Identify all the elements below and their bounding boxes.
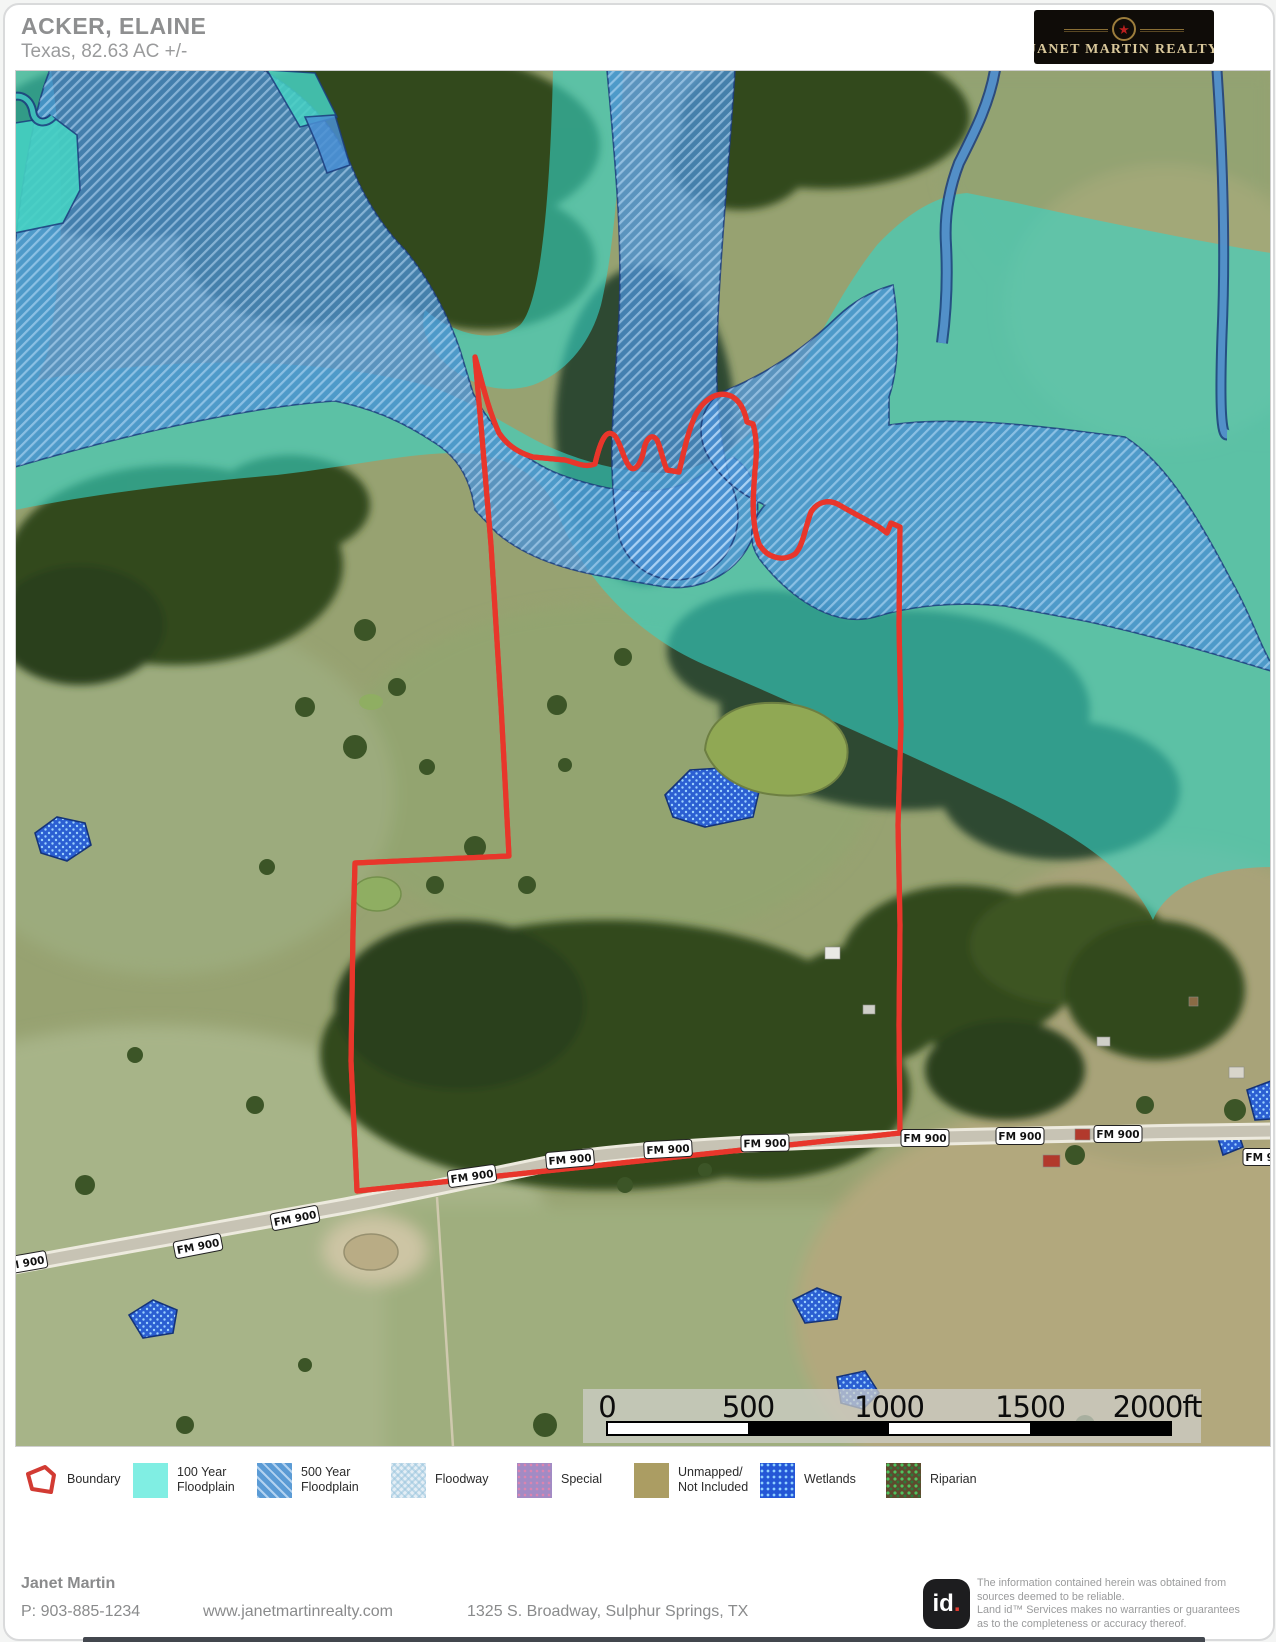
page-subtitle: Texas, 82.63 AC +/-	[21, 41, 187, 63]
agent-address: 1325 S. Broadway, Sulphur Springs, TX	[467, 1603, 748, 1621]
boundary-icon	[23, 1463, 58, 1498]
scale-tick: 1500	[995, 1390, 1065, 1424]
page: ACKER, ELAINE Texas, 82.63 AC +/- ★ JANE…	[0, 0, 1276, 1642]
agent-name: Janet Martin	[21, 1575, 115, 1593]
legend-label: Riparian	[930, 1472, 977, 1486]
legend-label: Unmapped/	[678, 1465, 743, 1479]
legend-label: Boundary	[67, 1472, 121, 1486]
scale-bar: 0 500 1000 1500 2000ft	[583, 1389, 1202, 1443]
floodplain-100yr-swatch	[133, 1463, 168, 1498]
scale-tick: 2000ft	[1113, 1390, 1203, 1424]
road-label-badge: FM 900	[998, 1131, 1041, 1143]
report-card: ACKER, ELAINE Texas, 82.63 AC +/- ★ JANE…	[3, 3, 1275, 1641]
scale-tick: 500	[722, 1390, 774, 1424]
road-label-badge: FM 900	[1096, 1129, 1139, 1141]
legend-label: Special	[561, 1472, 602, 1486]
road-label-badge: FM 900	[646, 1143, 690, 1157]
star-icon: ★	[1118, 23, 1130, 36]
legend-label: Not Included	[678, 1480, 748, 1494]
brand-logo: ★ JANET MARTIN REALTY	[1034, 10, 1214, 64]
scale-tick: 0	[598, 1390, 615, 1424]
bottom-bar	[83, 1637, 1205, 1642]
floodplain-500yr-swatch	[257, 1463, 292, 1498]
riparian-swatch	[886, 1463, 921, 1498]
floodway-swatch	[391, 1463, 426, 1498]
legend-label: Floodplain	[301, 1480, 359, 1494]
legend-label: Floodway	[435, 1472, 489, 1486]
disclaimer-line: sources deemed to be reliable.	[977, 1591, 1276, 1605]
legend-label: 100 Year	[177, 1465, 226, 1479]
road-label-badge: FM 900	[743, 1138, 786, 1151]
land-id-logo: id.	[923, 1579, 970, 1629]
logo-ornament: ★	[1064, 18, 1184, 40]
unmapped-swatch	[634, 1463, 669, 1498]
disclaimer-line: Land id™ Services makes no warranties or…	[977, 1604, 1276, 1618]
scale-tick: 1000	[854, 1390, 924, 1424]
legend-label: Floodplain	[177, 1480, 235, 1494]
land-id-dot: .	[954, 1590, 961, 1618]
legend-item-boundary: Boundary	[23, 1463, 58, 1503]
legend-label: Wetlands	[804, 1472, 856, 1486]
page-title: ACKER, ELAINE	[21, 13, 206, 40]
disclaimer-line: The information contained herein was obt…	[977, 1577, 1276, 1591]
road-label-badge: FM 900	[1245, 1152, 1271, 1164]
legend-label: 500 Year	[301, 1465, 350, 1479]
agent-phone: P: 903-885-1234	[21, 1603, 140, 1621]
agent-website: www.janetmartinrealty.com	[203, 1603, 393, 1621]
disclaimer: The information contained herein was obt…	[977, 1577, 1276, 1631]
road-label-badge: FM 900	[903, 1133, 946, 1145]
legend: Boundary 100 YearFloodplain 500 YearFloo…	[5, 1447, 1273, 1523]
brand-name: JANET MARTIN REALTY	[1034, 42, 1214, 58]
property-map: FM 900 FM 900 FM 900 FM 900 FM 900 FM 90…	[15, 70, 1271, 1447]
disclaimer-line: as to the completeness or accuracy there…	[977, 1618, 1276, 1632]
special-swatch	[517, 1463, 552, 1498]
wetlands-swatch	[760, 1463, 795, 1498]
